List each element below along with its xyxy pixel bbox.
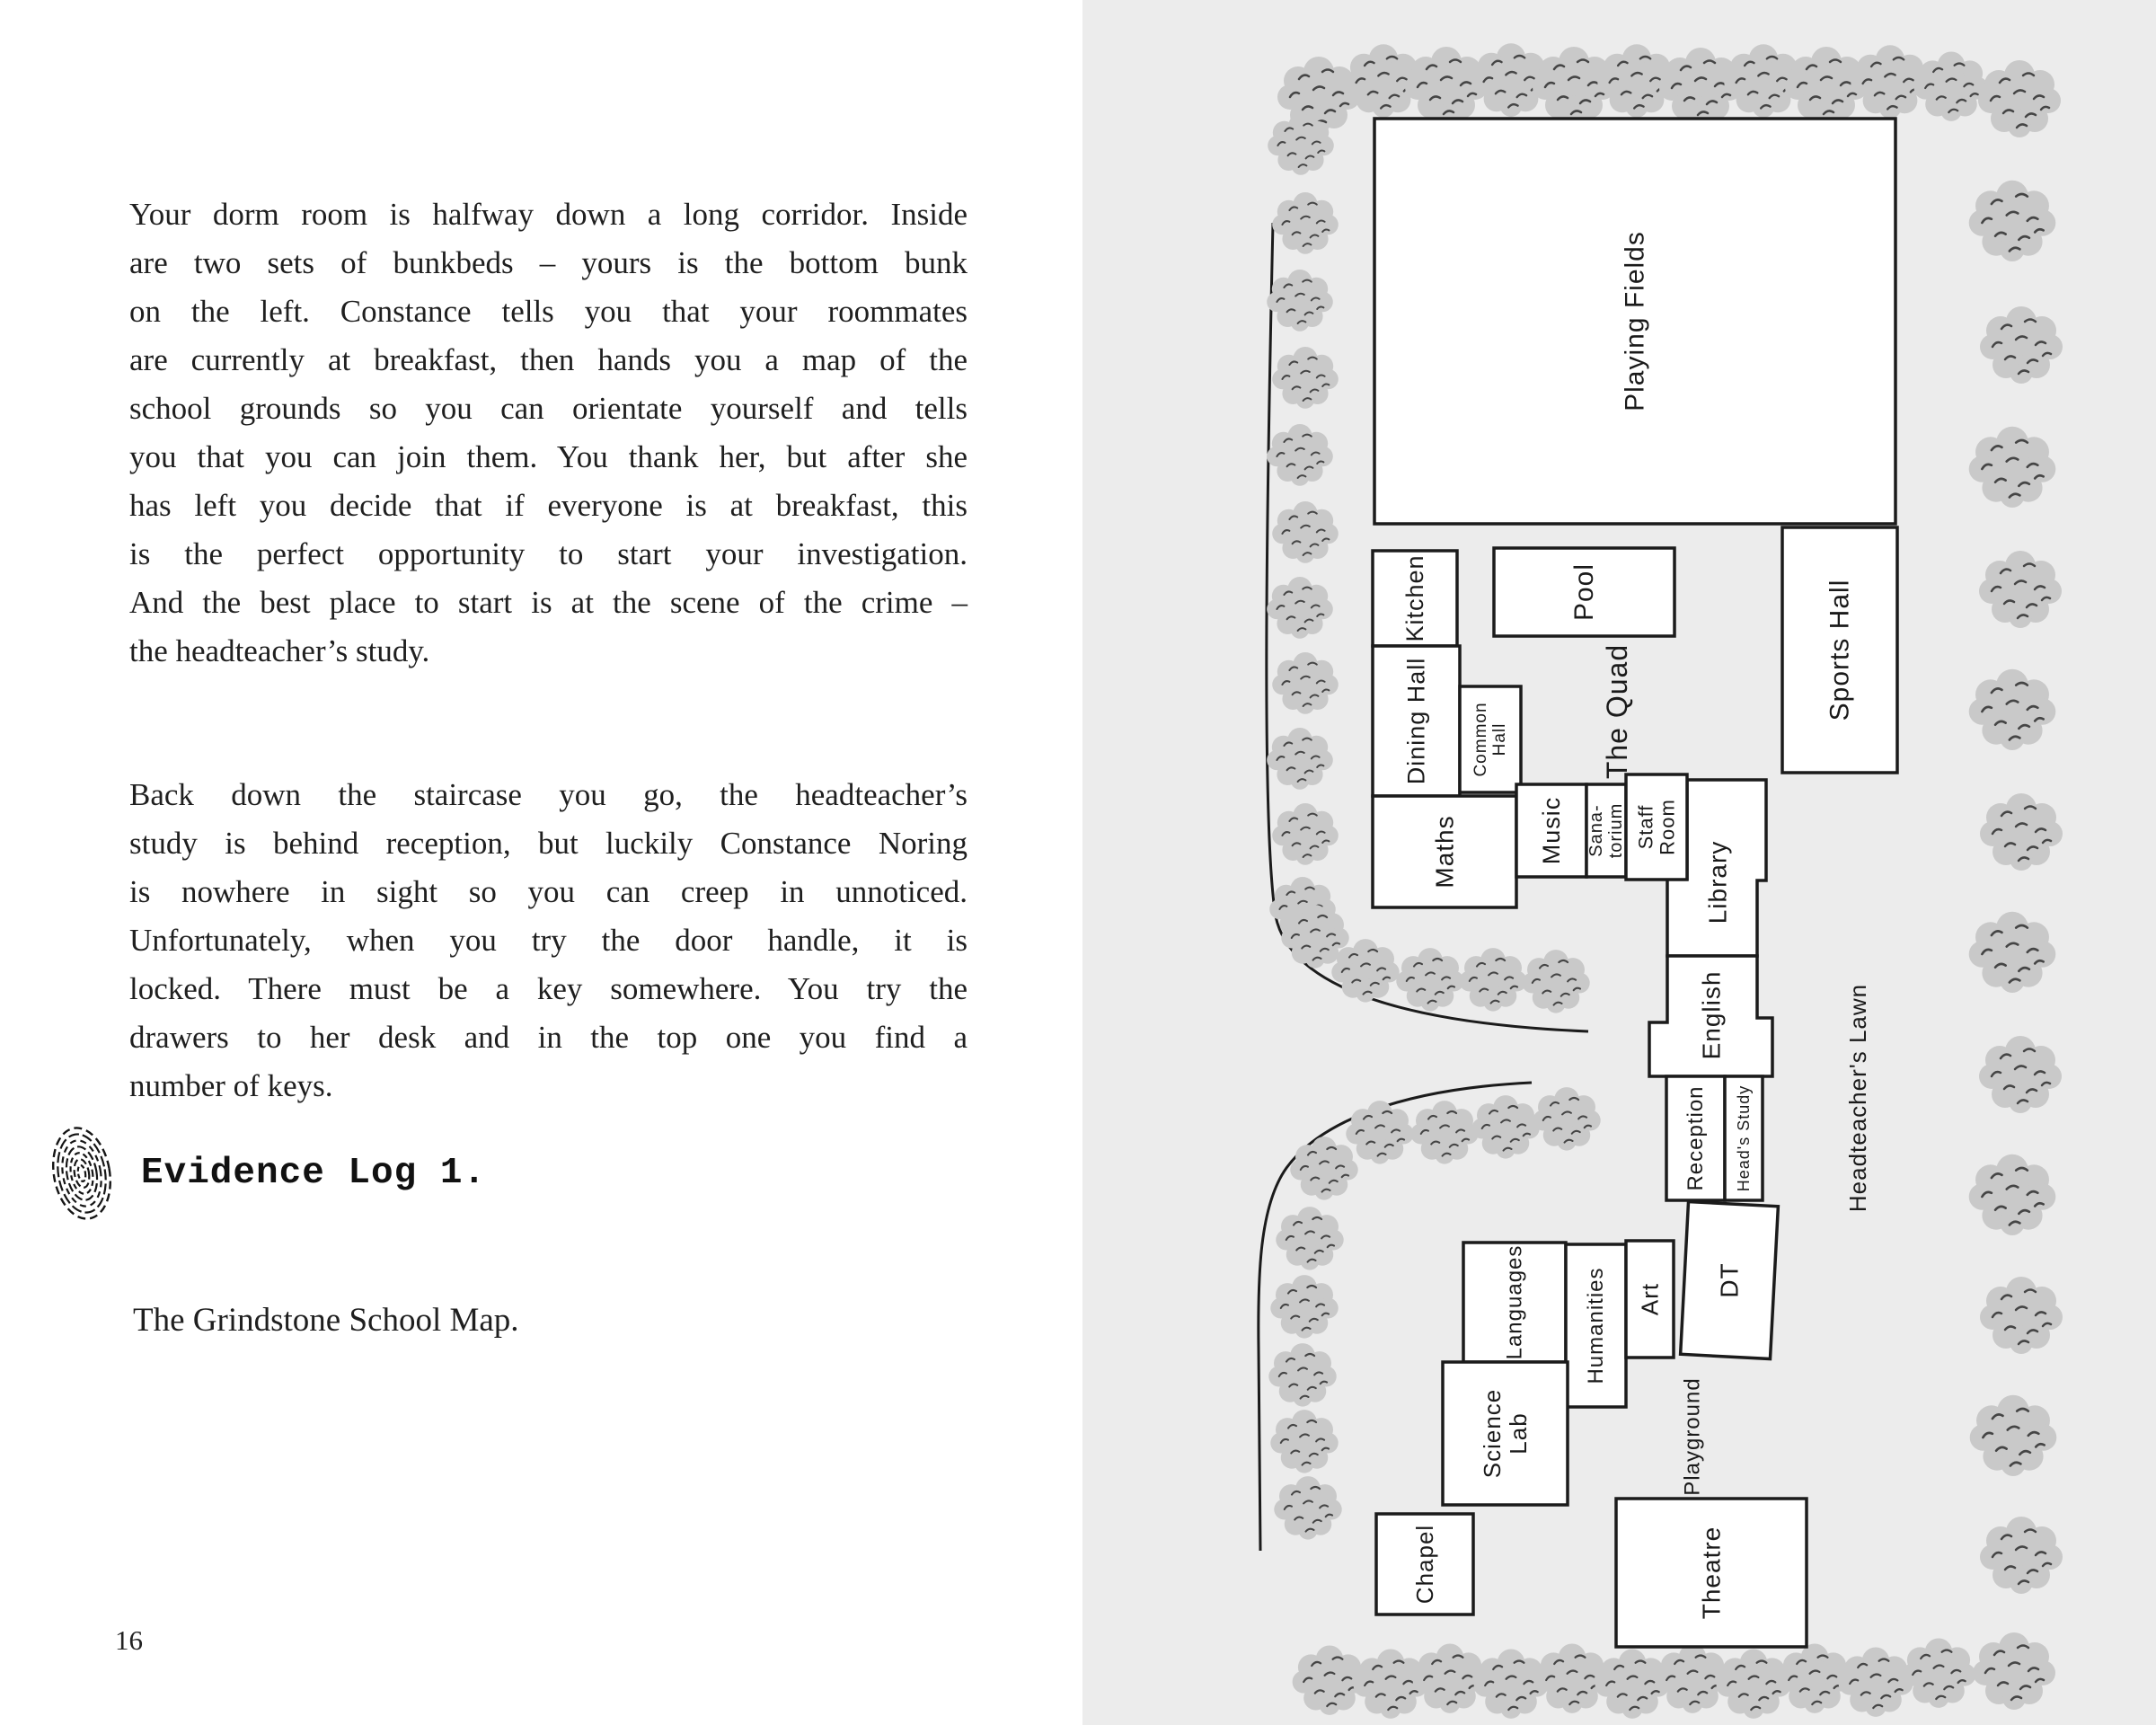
text-line: is the perfect opportunity to start your… — [129, 530, 968, 579]
text-line: study is behind reception, but luckily C… — [129, 819, 968, 868]
building-languages: Languages — [1463, 1243, 1566, 1362]
evidence-log-title: Evidence Log 1. — [141, 1153, 486, 1194]
map-label: Lab — [1505, 1412, 1532, 1454]
text-line: Unfortunately, when you try the door han… — [129, 916, 968, 965]
map-label: Maths — [1431, 815, 1459, 888]
text-line: locked. There must be a key somewhere. Y… — [129, 965, 968, 1013]
ground-label-headteachers-lawn: Headteacher's Lawn — [1844, 984, 1871, 1212]
text-line: school grounds so you can orientate your… — [129, 385, 968, 433]
map-label: torium — [1606, 803, 1626, 859]
building-heads-study: Head's Study — [1725, 1076, 1763, 1200]
map-label: The Quad — [1601, 644, 1633, 779]
paragraph-2: Back down the staircase you go, the head… — [129, 771, 968, 1110]
text-line: on the left. Constance tells you that yo… — [129, 287, 968, 336]
building-playing-fields: Playing Fields — [1374, 119, 1895, 524]
map-caption: The Grindstone School Map. — [133, 1301, 519, 1340]
map-label: Library — [1704, 841, 1732, 924]
map-label: Reception — [1683, 1085, 1708, 1190]
map-label: Room — [1657, 799, 1679, 855]
text-line: are two sets of bunkbeds – yours is the … — [129, 239, 968, 287]
ground-label-the-quad: The Quad — [1601, 644, 1633, 779]
map-label: Dining Hall — [1403, 658, 1430, 785]
map-label: Headteacher's Lawn — [1844, 984, 1871, 1212]
right-page: Playing FieldsKitchenPoolSports HallDini… — [1082, 0, 2156, 1725]
text-line: you that you can join them. You thank he… — [129, 433, 968, 482]
building-english: English — [1649, 956, 1772, 1076]
text-line: the headteacher’s study. — [129, 627, 968, 676]
building-reception: Reception — [1666, 1076, 1725, 1200]
text-line: are currently at breakfast, then hands y… — [129, 336, 968, 385]
building-chapel: Chapel — [1376, 1514, 1473, 1614]
building-maths: Maths — [1373, 796, 1516, 907]
map-label: Sports Hall — [1825, 579, 1855, 721]
map-label: Music — [1538, 797, 1565, 865]
text-line: number of keys. — [129, 1062, 968, 1110]
text-line: has left you decide that if everyone is … — [129, 482, 968, 530]
fingerprint-icon — [49, 1121, 114, 1225]
map-label: Head's Study — [1735, 1085, 1753, 1192]
text-line: Your dorm room is halfway down a long co… — [129, 190, 968, 239]
building-dt: DT — [1681, 1201, 1779, 1358]
map-label: Theatre — [1698, 1526, 1726, 1620]
map-label: Pool — [1569, 563, 1599, 621]
map-label: Sana- — [1586, 804, 1606, 856]
map-label: Art — [1637, 1283, 1664, 1315]
building-sports-hall: Sports Hall — [1782, 527, 1897, 773]
map-label: Chapel — [1411, 1525, 1438, 1604]
page-number-left: 16 — [115, 1624, 143, 1657]
text-line: is nowhere in sight so you can creep in … — [129, 868, 968, 916]
school-map-svg: Playing FieldsKitchenPoolSports HallDini… — [1082, 0, 2156, 1725]
building-staff-room: StaffRoom — [1626, 774, 1687, 880]
map-label: English — [1698, 971, 1726, 1060]
ground-label-playground: Playground — [1681, 1377, 1705, 1495]
map-label: Science — [1479, 1389, 1506, 1479]
building-art: Art — [1626, 1241, 1674, 1358]
building-kitchen: Kitchen — [1373, 551, 1457, 646]
map-label: Hall — [1490, 723, 1509, 756]
evidence-log-section: Evidence Log 1. — [49, 1121, 486, 1225]
text-line: Back down the staircase you go, the head… — [129, 771, 968, 819]
building-sanatorium: Sana-torium — [1586, 784, 1626, 877]
map-label: DT — [1716, 1262, 1744, 1297]
building-music: Music — [1516, 784, 1586, 877]
map-label: Languages — [1503, 1245, 1527, 1360]
map-label: Staff — [1634, 805, 1657, 850]
building-dining-hall: Dining Hall — [1373, 646, 1460, 796]
building-theatre: Theatre — [1616, 1499, 1807, 1647]
text-line: And the best place to start is at the sc… — [129, 579, 968, 627]
book-spread: Your dorm room is halfway down a long co… — [0, 0, 2156, 1725]
building-humanities: Humanities — [1566, 1244, 1626, 1407]
map-label: Kitchen — [1401, 554, 1428, 641]
map-label: Common — [1471, 702, 1490, 776]
building-pool: Pool — [1494, 548, 1674, 636]
building-science-lab: ScienceLab — [1443, 1362, 1568, 1505]
building-common-hall: CommonHall — [1460, 686, 1521, 792]
map-label: Playground — [1681, 1377, 1705, 1495]
paragraph-1: Your dorm room is halfway down a long co… — [129, 190, 968, 676]
map-label: Playing Fields — [1621, 231, 1650, 411]
map-label: Humanities — [1584, 1267, 1608, 1384]
text-line: drawers to her desk and in the top one y… — [129, 1013, 968, 1062]
